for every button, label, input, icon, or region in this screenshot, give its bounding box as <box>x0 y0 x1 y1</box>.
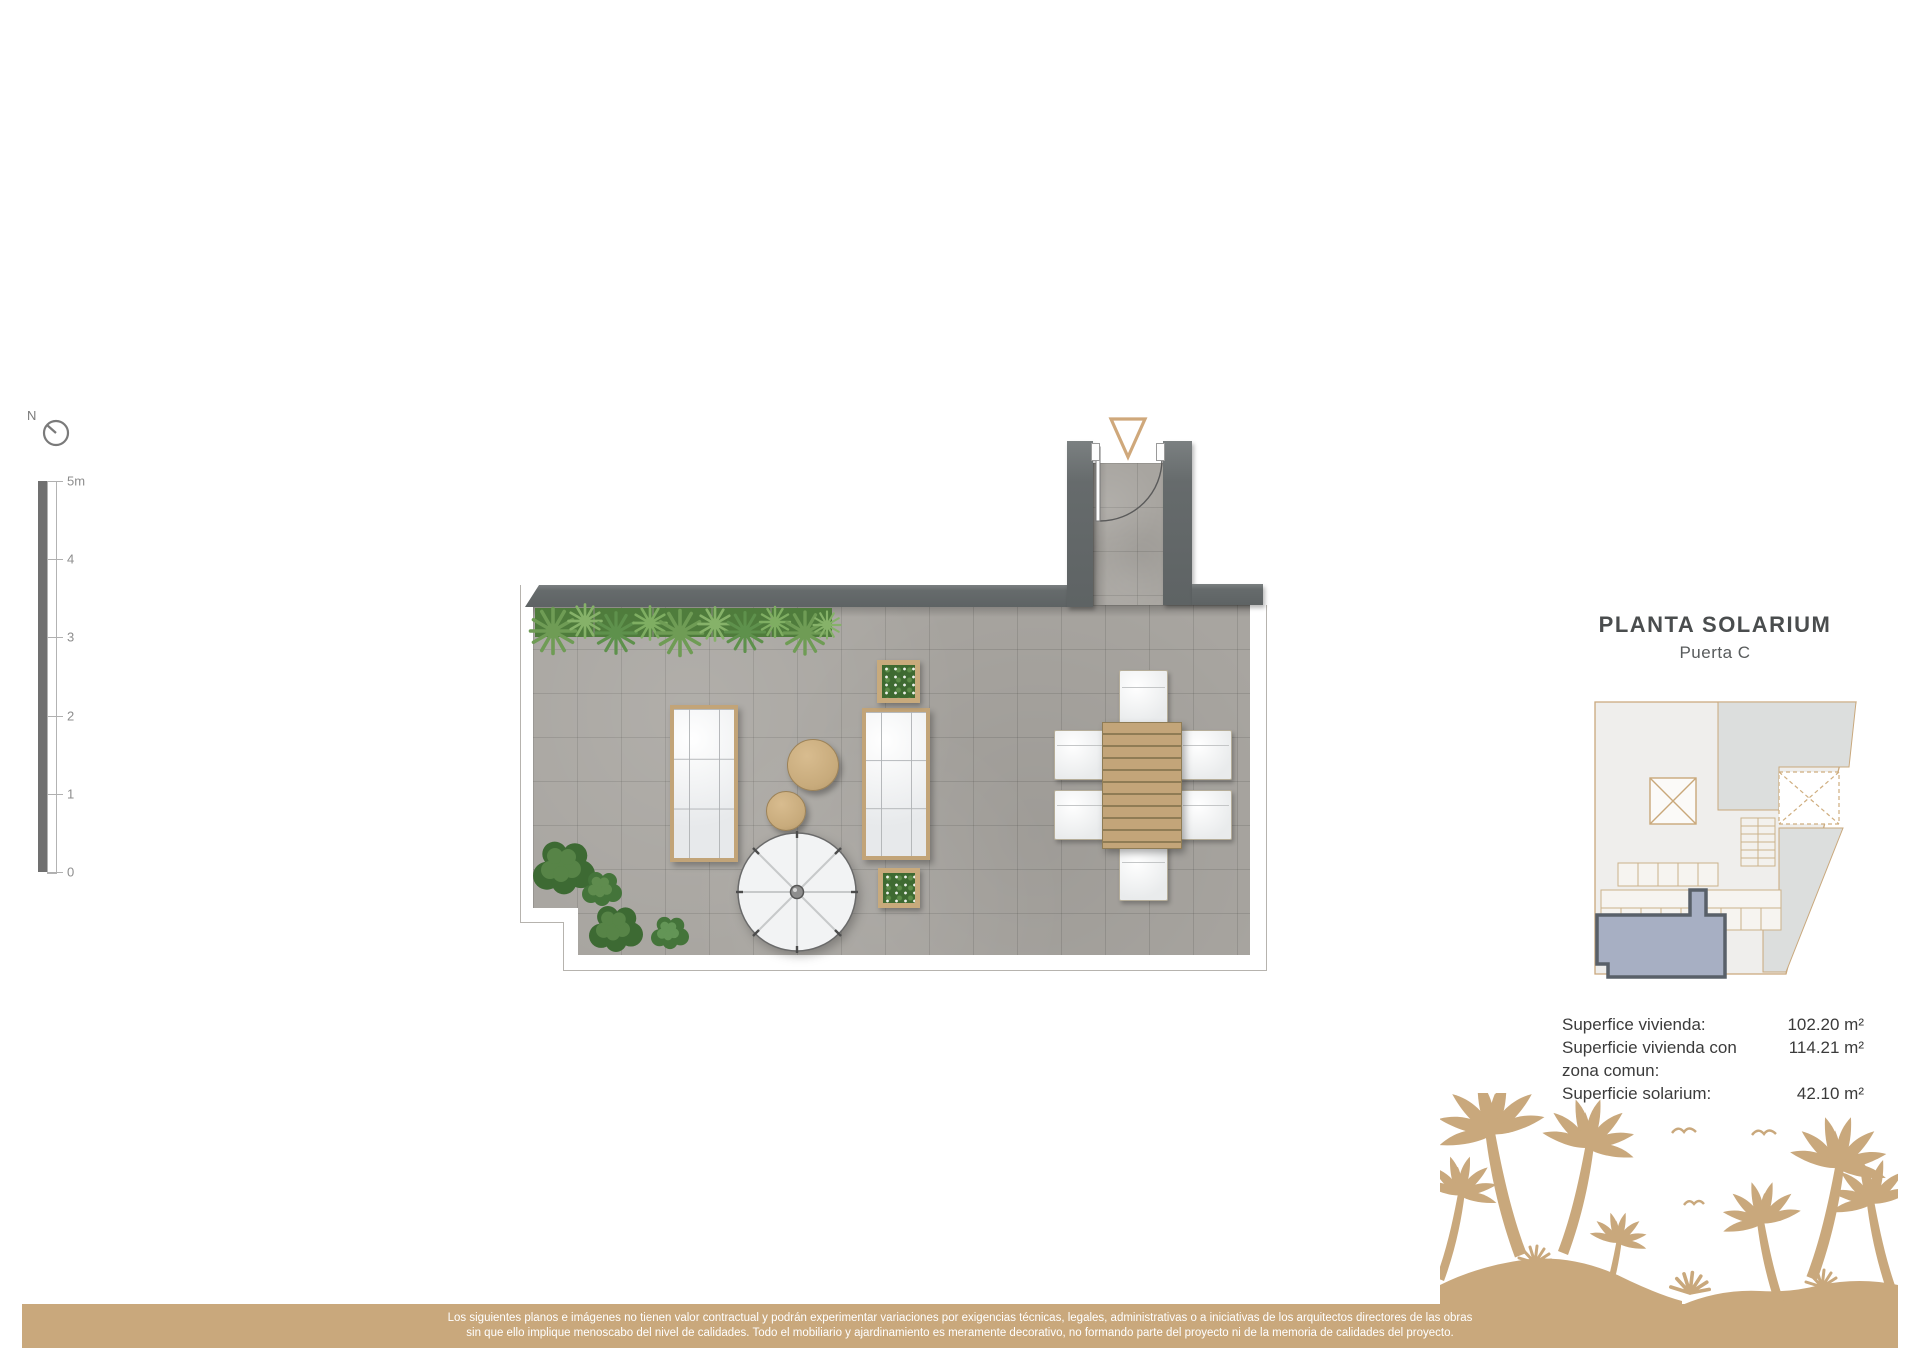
square-planter-top <box>877 660 920 703</box>
scale-label: 1 <box>67 787 74 802</box>
page-title: PLANTA SOLARIUM <box>1555 612 1875 638</box>
birds-icon <box>1672 1129 1776 1206</box>
pouf-table-large <box>787 739 839 791</box>
disclaimer-line-1: Los siguientes planos e imágenes no tien… <box>22 1311 1898 1326</box>
area-label: Superficie vivienda con <box>1562 1036 1737 1059</box>
area-table: Superfice vivienda: 102.20 m² Superficie… <box>1562 1013 1864 1105</box>
scale-label: 0 <box>67 865 74 880</box>
dining-chair-right-upper <box>1180 730 1232 780</box>
wall-top-right <box>1192 584 1263 605</box>
plan-sheet-page: { "meta": { "title": "PLANTA SOLARIUM", … <box>0 0 1920 1370</box>
plan-outline-bottom <box>563 970 1267 971</box>
dining-chair-left-lower <box>1054 790 1106 840</box>
door-jamb <box>1091 443 1100 461</box>
scale-bar-rule-inner <box>47 481 57 874</box>
dining-chair-top <box>1119 670 1168 726</box>
area-label: zona comun: <box>1562 1059 1659 1082</box>
area-row: Superficie vivienda con 114.21 m² <box>1562 1036 1864 1059</box>
area-label: Superfice vivienda: <box>1562 1013 1706 1036</box>
lightwell-dashed <box>1779 772 1839 824</box>
palm-trees-decoration <box>1440 1093 1898 1305</box>
area-row: zona comun: <box>1562 1059 1864 1082</box>
north-label: N <box>27 408 36 423</box>
disclaimer-line-2: sin que ello implique menoscabo del nive… <box>22 1326 1898 1341</box>
entry-marker-icon <box>1106 415 1150 461</box>
area-row: Superfice vivienda: 102.20 m² <box>1562 1013 1864 1036</box>
building-key-plan <box>1593 700 1861 990</box>
lightwell-solid <box>1650 778 1696 824</box>
scale-tick <box>47 716 63 717</box>
dining-table <box>1102 722 1182 849</box>
stair-core <box>1741 818 1775 866</box>
scale-tick <box>47 637 63 638</box>
title-block: PLANTA SOLARIUM Puerta C <box>1555 612 1875 663</box>
scale-label: 3 <box>67 630 74 645</box>
area-value: 102.20 m² <box>1787 1013 1864 1036</box>
shrubs <box>530 835 700 965</box>
scale-label: 5m <box>67 474 85 489</box>
solarium-floor-plan <box>518 415 1278 980</box>
plan-outline-right <box>1266 605 1267 971</box>
square-planter-bottom <box>878 868 920 908</box>
scale-bar: 5m 4 3 2 1 0 <box>38 474 128 884</box>
scale-bar-rule <box>38 481 47 872</box>
scale-tick <box>47 872 63 873</box>
sun-lounger-right <box>862 708 930 860</box>
area-value: 114.21 m² <box>1789 1036 1864 1059</box>
scale-tick <box>47 794 63 795</box>
parasol-umbrella <box>733 828 861 956</box>
dining-chair-right-lower <box>1180 790 1232 840</box>
page-subtitle: Puerta C <box>1555 643 1875 663</box>
door-jamb <box>1156 443 1165 461</box>
dining-chair-bottom <box>1119 845 1168 901</box>
dining-chair-left-upper <box>1054 730 1106 780</box>
hedge-planter <box>528 600 848 662</box>
scale-tick <box>47 559 63 560</box>
disclaimer-bar: Los siguientes planos e imágenes no tien… <box>22 1304 1898 1348</box>
scale-tick <box>47 481 63 482</box>
plan-outline-left <box>520 585 521 923</box>
north-compass-icon <box>39 417 71 449</box>
pouf-table-small <box>766 791 806 831</box>
scale-label: 2 <box>67 709 74 724</box>
scale-label: 4 <box>67 552 74 567</box>
